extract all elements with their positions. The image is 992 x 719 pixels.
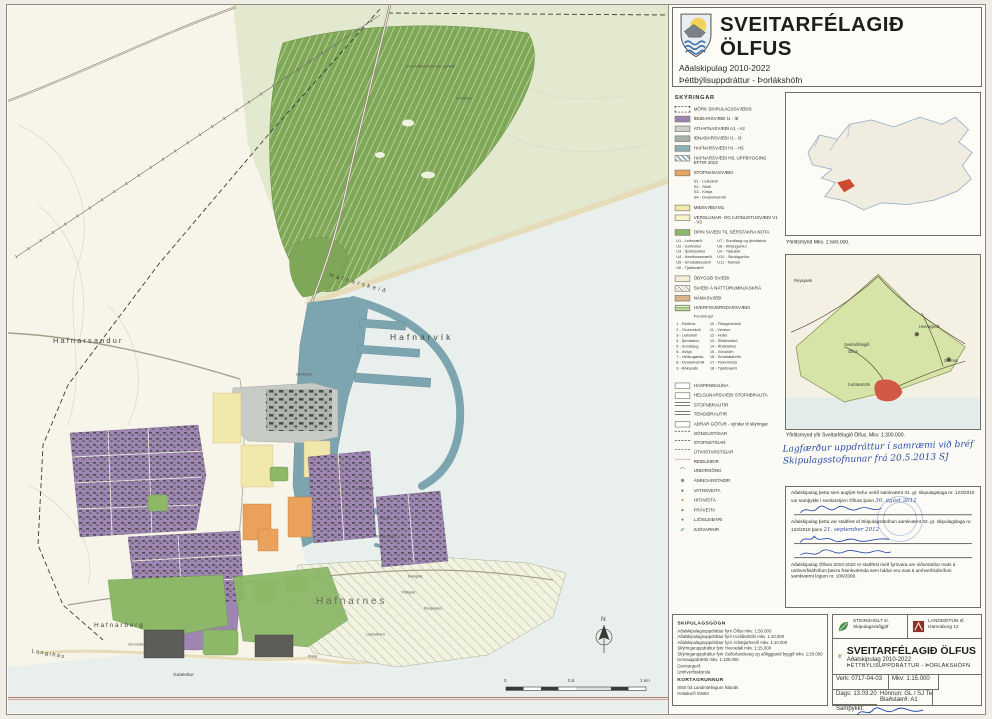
legend-row: ● LJÓSLEIÐARI: [675, 517, 780, 523]
scale-zero: 0: [504, 679, 507, 684]
legend-label: GÖNGUSTÍGAR: [694, 431, 728, 437]
legend-swatch: [675, 215, 690, 221]
map-label: H a f n a r s a n d u r: [53, 337, 121, 345]
field-dags: Dags: 13.03.2013: [836, 691, 877, 697]
legend-row: HELGUNARSVÆÐI STOFNBRAUTA: [675, 392, 780, 398]
legend-label: ATHAFNASVÆÐI A1 - A2: [694, 126, 745, 132]
legend-label: MIÐSVÆÐI M1: [694, 205, 725, 211]
legend-row: VERSLUNAR- OG ÞJÓNUSTUSVÆÐI V1 - V3: [675, 215, 780, 226]
iceland-overview-box: [785, 92, 981, 236]
signature-line-3: [794, 549, 971, 558]
legend-swatch: [675, 229, 690, 235]
legend-label: SVÆÐI Á NÁTTÚRUMINJASKRÁ: [694, 285, 761, 291]
basemap-line: Hnitakerfi ISN93: [677, 691, 822, 697]
stamp: [877, 496, 923, 542]
legend-label: HVERFISVERNDARSVÆÐI: [694, 305, 750, 311]
field-mkv: Mkv: 1:15.000: [892, 676, 930, 682]
legend-area-list-1: MÖRK SKIPULAGSSVÆÐIS ÍBÚÐARSVÆÐI Í1 - Í8…: [675, 106, 780, 176]
map-label: Friðmörk: [456, 97, 472, 101]
legend-swatch: [675, 106, 690, 112]
firm-1-cell: STEINSHOLT sf. Skipulagsráðgjöf: [833, 615, 908, 638]
iceland-caption: Yfirlitsmynd Mkv. 1:500.000.: [786, 240, 850, 245]
legend-row: HVERFISVERNDARSVÆÐI: [675, 305, 780, 311]
map-label: Ýtribyrki: [401, 591, 415, 595]
steinsholt-logo-icon: [837, 620, 850, 633]
firm-2-sub: Hamraborg 12: [928, 625, 965, 631]
legend-open-area-columns: U1 - LeiksvæðiU2 - GolfvöllurU3 - Íþrótt…: [676, 239, 779, 272]
title-block-fields: Verk: 0717-04-03 Mkv: 1:15.000 Dags: 13.…: [833, 675, 981, 705]
legend-label: HELGUNARSVÆÐI STOFNBRAUTA: [694, 392, 768, 398]
legend-swatch: [675, 440, 690, 441]
legend-swatch: [675, 305, 690, 311]
approval-signature: [855, 706, 925, 718]
regional-label-reykjavik: Reykjavík: [794, 279, 812, 283]
sheet-subtitle-plan: Aðalskipulag 2010-2022: [679, 63, 975, 73]
legend-row: ATHAFNASVÆÐI A1 - A2: [675, 126, 780, 132]
map-label: Hafnarvík: [390, 333, 453, 342]
legend-label: MÖRK SKIPULAGSSVÆÐIS: [694, 106, 752, 112]
legend-label: TENGIBRAUTIR: [694, 411, 727, 417]
field-blad: Blaðstærð: A1: [880, 697, 918, 703]
legend-label: IÐNAÐARSVÆÐI I1 - I3: [694, 136, 742, 142]
legend-label: STOFNBRAUTIR: [694, 402, 729, 408]
regional-label-hveragerdi: Hveragerði: [919, 325, 940, 329]
legend-row: ● VATNSVEITA: [675, 488, 780, 494]
map-label: Renglás: [408, 575, 423, 579]
legend-swatch: ⊕: [675, 478, 690, 484]
legend-label: STOFNANASVÆÐI: [694, 170, 733, 176]
title-block: SVEITARFÉLAGIÐ ÖLFUS Aðalskipulag 2010-2…: [672, 7, 982, 87]
legend-label: NÁMASVÆÐI: [694, 295, 722, 301]
scale-bar: [506, 687, 646, 690]
legend-open-item: U11 - Náman: [717, 261, 766, 266]
legend-row: ÍBÚÐARSVÆÐI Í1 - Í8: [675, 116, 780, 122]
legend-stofnana-sublist: S1 - LeikskóliS2 - SkóliS3 - KirkjaS4 - …: [694, 179, 780, 201]
compass-north-label: N: [601, 617, 606, 624]
legend-row: TENGIBRAUTIR: [675, 411, 780, 417]
field-verk: Verk: 0717-04-03: [836, 676, 882, 682]
legend-row: ⌒ UNDIRGÖNG: [675, 468, 780, 474]
map-label: Suðurvör: [358, 487, 374, 491]
firm-2-cell: LANDMÓTUN sf. Hamraborg 12: [908, 615, 982, 638]
legend-label: HITAVEITA: [694, 497, 716, 503]
regional-label-selfoss: Selfoss: [944, 359, 958, 363]
legend-swatch: [675, 145, 690, 151]
legend-subitem: S4 - Dvalarheimili: [694, 196, 780, 201]
plan-documents-title: SKIPULAGSGÖGN: [677, 621, 822, 626]
legend-open-item: U6 - Tjaldsvæði: [676, 266, 711, 271]
legend-label: ÓBYGGÐ SVÆÐI: [694, 275, 730, 281]
legend-line-list: HÁSPENNULÍNA HELGUNARSVÆÐI STOFNBRAUTA S…: [675, 383, 780, 534]
legend-swatch: [675, 402, 690, 406]
plan-documents-list: Aðalskipulagsuppdráttur fyrir Ölfus mkv.…: [677, 629, 822, 676]
legend-swatch: [675, 170, 690, 176]
scale-half: 0,5: [568, 679, 574, 684]
legend-swatch: [675, 431, 690, 432]
legend-row: REIÐLEIÐIR: [675, 459, 780, 465]
legend-label: UNDIRGÖNG: [694, 468, 722, 474]
map-label: Gatklettur: [173, 673, 194, 678]
legend-label: ÁNINGARSTAÐIR: [694, 478, 730, 484]
map-label: Brekkuskjól: [376, 535, 396, 539]
map-label: Framtíðarsvæði fyrir golfvöll: [406, 65, 455, 69]
regional-label-olfus2: Ölfus: [848, 350, 858, 354]
legend-row: STOFNSTÍGAR: [675, 440, 780, 446]
legend-label: LJÓSLEIÐARI: [694, 517, 723, 523]
landmotun-logo-icon: [912, 620, 925, 633]
bottom-title: SVEITARFÉLAGIÐ ÖLFUS Aðalskipulag 2010-2…: [833, 639, 981, 675]
legend-num-item: 18 - Tjaldsvæði: [710, 367, 741, 372]
legend-swatch: [675, 126, 690, 132]
legend-row: ⁄⁄⁄ SJÓVARNIR: [675, 527, 780, 533]
legend-swatch: [675, 383, 690, 389]
bottom-org-name: SVEITARFÉLAGIÐ ÖLFUS: [847, 645, 976, 657]
legend-swatch: [675, 421, 690, 427]
legend-swatch: [675, 155, 690, 161]
legend-row: SVÆÐI Á NÁTTÚRUMINJASKRÁ: [675, 285, 780, 291]
bottom-title-block: STEINSHOLT sf. Skipulagsráðgjöf LANDMÓTU…: [832, 614, 982, 706]
map-label: Flesjasker: [424, 607, 442, 611]
legend-label: VERSLUNAR- OG ÞJÓNUSTUSVÆÐI V1 - V3: [694, 215, 780, 226]
plan-sheet: H a f n a r s a n d u r Hafnarvík Hafnar…: [0, 0, 992, 719]
legend-label: HAFNARSVÆÐI H6, UPPBYGGING EFTIR 2022: [694, 155, 780, 166]
legend-row: HAFNARSVÆÐI H6, UPPBYGGING EFTIR 2022: [675, 155, 780, 166]
legend-area-list-2: MIÐSVÆÐI M1 VERSLUNAR- OG ÞJÓNUSTUSVÆÐI …: [675, 205, 780, 236]
basemap-list: IS50 frá Landmælingum ÍslandsHnitakerfi …: [677, 685, 822, 697]
plan-document-line: Umhverfisskýrsla: [677, 669, 822, 675]
legend-label: HAFNARSVÆÐI H1 - H5: [694, 145, 744, 151]
map-label: H a f n a r n e s: [316, 597, 384, 607]
legend-label: OPIN SVÆÐI TIL SÉRSTAKRA NOTA: [694, 229, 770, 235]
signature: [799, 534, 893, 545]
legend-open-item: U7 - Sundlaug og íþróttahús: [717, 239, 766, 244]
legend-label: AÐRAR GÖTUR - sýndar til skýringar: [694, 421, 768, 427]
legend-swatch: [675, 116, 690, 122]
legend-row: STOFNBRAUTIR: [675, 402, 780, 408]
legend-title: SKÝRINGAR: [675, 94, 780, 100]
scale-one-km: 1 km: [640, 679, 650, 684]
map-label: Skötubót: [296, 373, 312, 377]
legend-swatch: ⌒: [675, 468, 690, 474]
map-label: H a f n a r b e r g: [94, 623, 143, 630]
frame-inner-line: [8, 697, 668, 700]
legend-swatch: ⁄⁄⁄: [675, 527, 690, 533]
map-label: Ölver: [380, 517, 389, 521]
legend-label: SJÓVARNIR: [694, 527, 719, 533]
info-panel: SVEITARFÉLAGIÐ ÖLFUS Aðalskipulag 2010-2…: [669, 4, 986, 715]
signature: [799, 548, 893, 559]
bottom-sheet-name: ÞÉTTBÝLISUPPDRÁTTUR - ÞORLÁKSHÖFN: [847, 663, 976, 669]
legend-swatch: [675, 205, 690, 211]
regional-caption: Yfirlitsmynd yfir Sveitarfélagið Ölfus. …: [786, 433, 905, 438]
legend-label: VATNSVEITA: [694, 488, 721, 494]
legend-swatch: ●: [675, 488, 690, 494]
legend-row: MÖRK SKIPULAGSSVÆÐIS: [675, 106, 780, 112]
handwritten-note: Lagfærður uppdráttur í samræmi við bréf …: [783, 439, 984, 484]
legend-row: ÓBYGGÐ SVÆÐI: [675, 275, 780, 281]
legend-row: STOFNANASVÆÐI: [675, 170, 780, 176]
signature-line-2: [794, 535, 971, 544]
legend-row: GÖNGUSTÍGAR: [675, 431, 780, 437]
legend-row: HÁSPENNULÍNA: [675, 383, 780, 389]
legend-row: NÁMASVÆÐI: [675, 295, 780, 301]
legend-swatch: [675, 285, 690, 291]
legend-swatch: [675, 295, 690, 301]
legend-label: FRÁVEITA: [694, 507, 716, 513]
legend-numbered-columns: 1 - Ráðhús2 - Grunnskóli3 - Leikskóli4 -…: [676, 323, 779, 372]
signature: [799, 505, 885, 516]
legend-num-item: 9 - Bókasafn: [676, 367, 704, 372]
legend-swatch: [675, 392, 690, 398]
legend-swatch: ●: [675, 497, 690, 503]
approval-2-date: 21. september 2012: [824, 526, 880, 532]
legend-row: ⊕ ÁNINGARSTAÐIR: [675, 478, 780, 484]
legend-area-list-3: ÓBYGGÐ SVÆÐI SVÆÐI Á NÁTTÚRUMINJASKRÁ NÁ…: [675, 275, 780, 311]
legend-row: AÐRAR GÖTUR - sýndar til skýringar: [675, 421, 780, 427]
regional-overview-map: [786, 255, 980, 429]
legend-row: ● FRÁVEITA: [675, 507, 780, 513]
map-label: Leiðarhorn: [366, 633, 385, 637]
map-label: Grunnabás: [128, 643, 148, 647]
approval-3-text: Aðalskipulag Ölfuss 2010-2022 er staðfes…: [791, 563, 975, 581]
legend-label: ÚTIVISTARSTÍGAR: [694, 449, 734, 455]
legend-swatch: [675, 411, 690, 415]
regional-label-olfus: Sveitarfélagið: [844, 343, 869, 347]
legend-swatch: [675, 459, 690, 460]
consultant-logos: STEINSHOLT sf. Skipulagsráðgjöf LANDMÓTU…: [833, 615, 981, 639]
legend-swatch: [675, 449, 690, 450]
sheet-title: SVEITARFÉLAGIÐ ÖLFUS: [679, 13, 975, 61]
plan-documents-block: SKIPULAGSGÖGN Aðalskipulagsuppdráttur fy…: [672, 614, 828, 706]
legend-swatch: ●: [675, 507, 690, 513]
regional-label-thorlakshofn: Þorlákshöfn: [848, 383, 870, 387]
firm-1-sub: Skipulagsráðgjöf: [853, 625, 889, 631]
legend-row: HAFNARSVÆÐI H1 - H5: [675, 145, 780, 151]
main-map: H a f n a r s a n d u r Hafnarvík Hafnar…: [8, 5, 668, 713]
sheet-subtitle-drawing: Þéttbýlisuppdráttur - Þorlákshöfn: [679, 75, 975, 85]
coat-of-arms-small: [838, 643, 842, 670]
basemap-title: KORTAGRUNNUR: [677, 677, 822, 682]
map-label: Flásir: [308, 655, 318, 659]
legend-label: HÁSPENNULÍNA: [694, 383, 729, 389]
legend-row: ● HITAVEITA: [675, 497, 780, 503]
legend-row: ÚTIVISTARSTÍGAR: [675, 449, 780, 455]
legend: SKÝRINGAR MÖRK SKIPULAGSSVÆÐIS ÍBÚÐARSVÆ…: [672, 90, 782, 610]
regional-overview-box: Reykjavík Hveragerði Selfoss Sveitarféla…: [785, 254, 981, 430]
legend-swatch: [675, 275, 690, 281]
legend-label: ÍBÚÐARSVÆÐI Í1 - Í8: [694, 116, 739, 122]
legend-label: REIÐLEIÐIR: [694, 459, 719, 465]
legend-swatch: [675, 136, 690, 142]
legend-row: MIÐSVÆÐI M1: [675, 205, 780, 211]
legend-row: IÐNAÐARSVÆÐI I1 - I3: [675, 136, 780, 142]
coat-of-arms: [679, 13, 713, 59]
legend-hverfis-sublist: Fornminjar: [694, 314, 780, 319]
legend-subitem: Fornminjar: [694, 314, 780, 319]
iceland-overview-map: [786, 93, 980, 235]
legend-label: STOFNSTÍGAR: [694, 440, 726, 446]
legend-swatch: ●: [675, 517, 690, 523]
legend-row: OPIN SVÆÐI TIL SÉRSTAKRA NOTA: [675, 229, 780, 235]
